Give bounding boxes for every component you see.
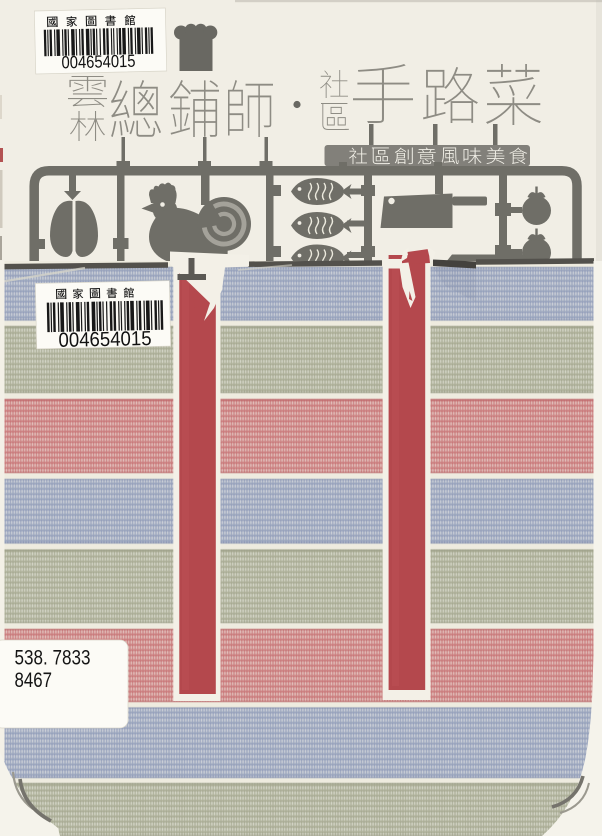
svg-text:8467: 8467 (15, 668, 53, 692)
svg-text:004654015: 004654015 (61, 51, 136, 73)
svg-text:538. 7833: 538. 7833 (15, 646, 91, 670)
svg-text:004654015: 004654015 (58, 328, 151, 352)
